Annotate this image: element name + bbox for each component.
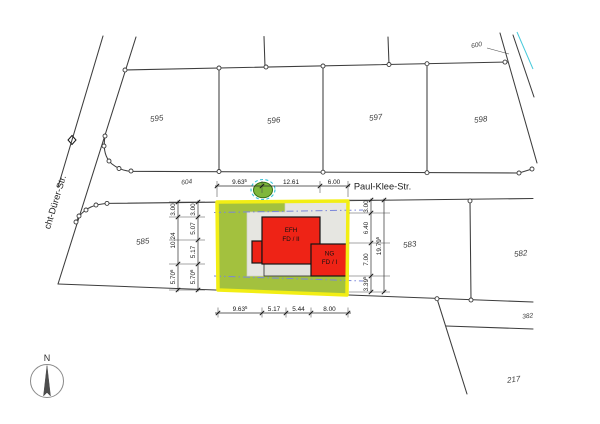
dim-bottom-0: 9.635 [233, 305, 248, 313]
north-arrow: N [31, 353, 64, 398]
bottom-dimension-chain: 9.635 5.17 5.44 8.00 [215, 305, 351, 318]
north-stub-2 [388, 37, 389, 65]
dim-bottom-1: 5.17 [268, 306, 281, 313]
boundary-point [469, 298, 473, 302]
boundary-point [94, 203, 98, 207]
label-600-leader [487, 48, 509, 54]
paul-klee-north-line [104, 136, 532, 173]
divider-583-582 [470, 201, 471, 300]
top-dimension-chain: 9.635 12.61 6.00 [215, 178, 350, 197]
site-plan-page: 9.635 12.61 6.00 9.635 5.17 5.44 8.00 3.… [0, 0, 600, 424]
boundary-point [425, 171, 429, 175]
boundary-point [217, 170, 221, 174]
efh-label-line1: EFH [285, 227, 298, 234]
dim-bottom-2: 5.44 [292, 306, 305, 313]
dim-left-inner-2: 5.17 [190, 245, 197, 258]
boundary-point [530, 167, 534, 171]
parcel-585-label: 585 [136, 236, 151, 247]
parcel-596-label: 596 [267, 115, 282, 126]
parcel-583-label: 583 [403, 239, 418, 250]
boundary-point [217, 66, 221, 70]
dim-left-inner-0: 3.00 [190, 203, 197, 216]
ng-label-line2: FD / I [322, 259, 338, 266]
dim-left-outer-1: 10.24 [170, 232, 177, 248]
dim-right-outer-0: 19.795 [375, 236, 383, 255]
north-arrow-needle [44, 366, 51, 397]
boundary-point [103, 134, 107, 138]
duerer-street-label: cht-Dürer-Str. [42, 174, 68, 230]
parcel-382-label: 382 [522, 312, 534, 320]
boundary-point [102, 144, 106, 148]
dim-left-inner-3: 5.706 [189, 269, 197, 284]
boundary-point [321, 64, 325, 68]
dim-right-inner-1: 6.40 [363, 221, 370, 234]
dim-right-inner-3: 3.395 [362, 276, 370, 291]
boundary-point [105, 201, 109, 205]
dim-top-2: 6.00 [328, 179, 341, 186]
boundary-point [468, 199, 472, 203]
boundary-point [84, 208, 88, 212]
dim-bottom-3: 8.00 [323, 306, 336, 313]
parcel-582-label: 582 [514, 248, 529, 259]
boundary-point [77, 214, 81, 218]
dim-right-inner-0: 3.00 [363, 200, 370, 213]
parcel-217-label: 217 [506, 374, 522, 385]
parcel-600-label: 600 [471, 41, 484, 50]
boundary-point [387, 63, 391, 67]
building-efh-west-wing [252, 241, 262, 263]
boundary-point [425, 62, 429, 66]
left-dimension-chains: 3.00 10.24 5.706 3.00 5.07 5.17 5.706 [169, 200, 205, 292]
dim-top-1: 12.61 [283, 179, 299, 186]
parcel-595-label: 595 [150, 113, 165, 124]
highlighted-parcel [214, 201, 363, 295]
utility-line-cyan [517, 32, 533, 69]
north-arrow-label: N [44, 353, 51, 363]
dim-top-0: 9.635 [232, 178, 247, 186]
boundary-point [321, 170, 325, 174]
parcel-598-label: 598 [474, 114, 489, 125]
paul-klee-street-label: Paul-Klee-Str. [354, 182, 411, 192]
tree-symbol [251, 180, 275, 200]
terrace-outline [264, 264, 316, 277]
dim-left-outer-0: 3.00 [170, 203, 177, 216]
parcel-597-label: 597 [369, 112, 384, 123]
north-stub-1 [264, 37, 265, 68]
parcel-604-label: 604 [181, 178, 193, 186]
right-dimension-chains: 3.00 6.40 7.00 3.395 19.795 [349, 198, 390, 294]
boundary-point [107, 159, 111, 163]
boundary-point [517, 171, 521, 175]
efh-label-line2: FD / II [282, 236, 299, 243]
dim-left-inner-1: 5.07 [190, 222, 197, 235]
dim-right-inner-2: 7.00 [363, 253, 370, 266]
boundary-point [74, 220, 78, 224]
boundary-217-diagonal [437, 299, 467, 394]
boundary-point [123, 68, 127, 72]
dim-left-outer-2: 5.706 [169, 269, 177, 284]
boundary-point [435, 297, 439, 301]
ne-street-diagonal-2 [513, 35, 534, 97]
boundary-point [503, 60, 507, 64]
boundary-point [117, 167, 121, 171]
duerer-street-east-line [58, 37, 136, 284]
site-plan-drawing: 9.635 12.61 6.00 9.635 5.17 5.44 8.00 3.… [0, 0, 600, 424]
boundary-382-line [446, 326, 533, 329]
north-block-boundary [125, 62, 508, 70]
boundary-point [129, 169, 133, 173]
ng-label-line1: NG [325, 251, 335, 258]
boundary-point [264, 65, 268, 69]
